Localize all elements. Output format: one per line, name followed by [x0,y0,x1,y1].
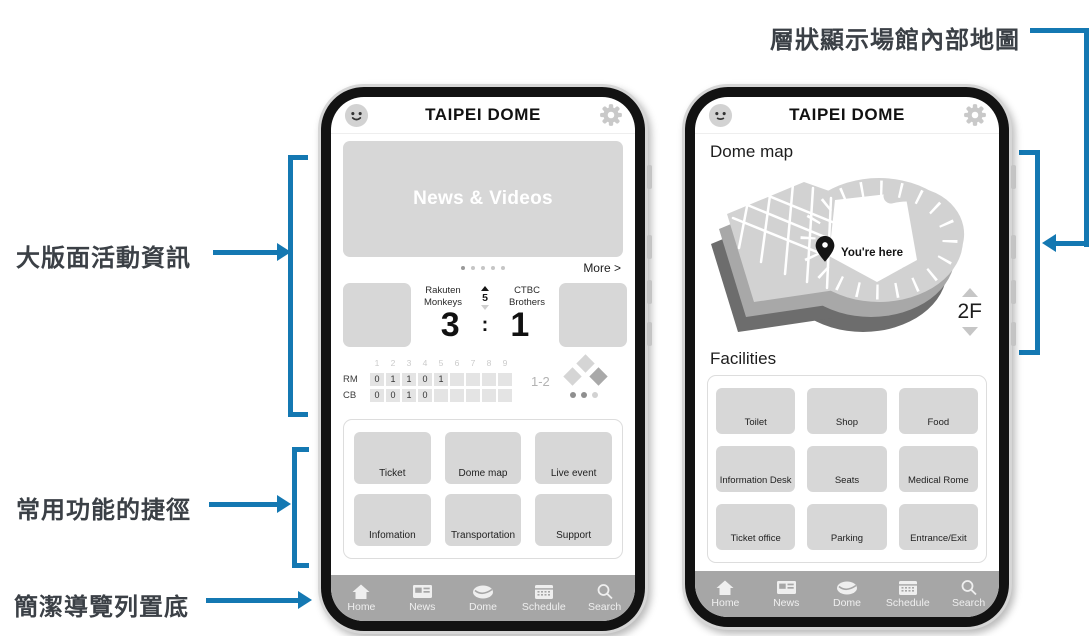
side-button [647,280,652,304]
shortcut-transportation[interactable]: Transportation [445,494,522,546]
floor-down-icon[interactable] [962,327,978,336]
facility-medical-rome[interactable]: Medical Rome [899,446,978,492]
side-button [647,165,652,189]
out-dot [592,392,598,398]
carousel-row: More > [343,259,623,279]
nav-schedule[interactable]: Schedule [513,575,574,621]
search-icon [960,579,978,596]
phone-right-screen: TAIPEI DOME Dome map [695,97,999,617]
home-icon [351,583,371,600]
out-dot [570,392,576,398]
annotation-event-info: 大版面活動資訊 [16,238,191,273]
shortcuts-bracket [292,447,297,568]
shortcut-support[interactable]: Support [535,494,612,546]
nav-news[interactable]: News [392,575,453,621]
nav-search[interactable]: Search [574,575,635,621]
carousel-dot[interactable] [481,266,485,270]
facility-information-desk[interactable]: Information Desk [716,446,795,492]
event-bracket-top-cap [288,155,308,160]
annotation-shortcuts: 常用功能的捷徑 [16,490,191,525]
inning-cell [482,373,496,386]
side-button [647,235,652,259]
away-team-logo [559,283,627,347]
inning-col: 9 [497,358,513,368]
shortcuts-bracket-top-cap [292,447,309,452]
event-bracket [288,155,293,417]
shortcut-dome-map[interactable]: Dome map [445,432,522,484]
inning-col: 6 [449,358,465,368]
inning-cell: 1 [386,373,400,386]
annotation-bottom-nav: 簡潔導覽列置底 [14,587,189,622]
inning-col: 5 [433,358,449,368]
side-button [1011,165,1016,189]
home-icon [715,579,735,596]
event-bracket-bottom-cap [288,412,308,417]
inning-cell [434,389,448,402]
second-base-icon [576,354,594,372]
annotation-map-layers: 層狀顯示場館內部地圖 [770,20,1020,55]
nav-arrowhead [298,591,312,609]
inning-number: 5 [482,292,488,304]
row-team-label: RM [343,374,369,385]
inning-cell: 0 [418,373,432,386]
inning-cell: 0 [370,389,384,402]
map-connector-arrowhead [1042,234,1056,252]
carousel-dot[interactable] [501,266,505,270]
search-icon [596,583,614,600]
inning-cell: 1 [402,389,416,402]
floor-up-icon[interactable] [962,288,978,297]
gear-icon[interactable] [599,103,623,127]
canvas: 層狀顯示場館內部地圖 大版面活動資訊 常用功能的捷徑 簡潔導覽列置底 TAIPE… [0,0,1092,636]
nav-home[interactable]: Home [695,571,756,617]
map-bracket-bottom-cap [1019,350,1040,355]
bottom-nav: Home News Dome Schedule Search [695,571,999,617]
inning-cell [466,373,480,386]
carousel-dots[interactable] [343,266,623,270]
carousel-dot[interactable] [491,266,495,270]
facilities-panel: Toilet Shop Food Information Desk Seats … [707,375,987,563]
inning-cell: 1 [402,373,416,386]
schedule-icon [898,579,918,596]
phone-left: TAIPEI DOME News & Videos [318,84,648,634]
nav-dome[interactable]: Dome [817,571,878,617]
score-separator: : [482,314,489,337]
home-team-logo [343,283,411,347]
inning-cell: 0 [418,389,432,402]
inning-cell [498,373,512,386]
home-score: 3 [441,308,460,342]
inning-col: 4 [417,358,433,368]
bottom-nav: Home News Dome Schedule Search [331,575,635,621]
nav-search[interactable]: Search [938,571,999,617]
inning-bottom-icon [481,305,489,310]
facility-shop[interactable]: Shop [807,388,886,434]
carousel-dot[interactable] [461,266,465,270]
map-bracket [1035,150,1040,355]
news-icon [776,579,797,596]
map-bracket-top-cap [1019,150,1040,155]
inning-cell [466,389,480,402]
away-score: 1 [510,308,529,342]
side-button [647,322,652,346]
inning-col: 3 [401,358,417,368]
facility-food[interactable]: Food [899,388,978,434]
shortcuts-panel: Ticket Dome map Live event Infomation Tr… [343,419,623,559]
nav-news[interactable]: News [756,571,817,617]
facility-seats[interactable]: Seats [807,446,886,492]
more-link[interactable]: More > [583,261,621,275]
row-team-label: CB [343,390,369,401]
inning-cell: 0 [386,389,400,402]
facility-entrance-exit[interactable]: Entrance/Exit [899,504,978,550]
app-title: TAIPEI DOME [331,105,635,125]
first-base-icon [589,367,607,385]
dome-map-title: Dome map [710,142,999,162]
map-connector-line-bottom [1056,241,1089,246]
scoreboard-center: Rakuten Monkeys 5 CTBC Brothers 3 : 1 [411,283,559,347]
inning-cell [482,389,496,402]
third-base-icon [563,367,581,385]
shortcuts-bracket-bottom-cap [292,563,309,568]
inning-cell [498,389,512,402]
inning-cell [450,373,464,386]
app-title: TAIPEI DOME [695,105,999,125]
floor-label: 2F [957,300,982,324]
facility-parking[interactable]: Parking [807,504,886,550]
side-button [1011,322,1016,346]
out-dot [581,392,587,398]
inning-cell [450,389,464,402]
nav-home[interactable]: Home [331,575,392,621]
facility-ticket-office[interactable]: Ticket office [716,504,795,550]
app-header: TAIPEI DOME [695,97,999,133]
inning-indicator: 5 [481,285,489,310]
you-are-here-label: You're here [841,247,903,259]
map-connector-line-side [1084,28,1089,247]
dome-map-illustration: You're here [709,164,981,340]
dome-map: You're here 2F [695,164,999,340]
shortcut-infomation[interactable]: Infomation [354,494,431,546]
app-header: TAIPEI DOME [331,97,635,133]
nav-schedule[interactable]: Schedule [877,571,938,617]
map-connector-line-top [1030,28,1089,33]
bases-diagram [561,356,609,404]
dome-icon [471,583,495,600]
shortcuts-arrowhead [277,495,291,513]
phone-right: TAIPEI DOME Dome map [682,84,1012,630]
inning-col: 7 [465,358,481,368]
side-button [1011,280,1016,304]
inning-top-icon [481,286,489,291]
news-icon [412,583,433,600]
floor-selector: 2F [957,288,982,336]
news-videos-card[interactable]: News & Videos [343,141,623,257]
inning-col: 2 [385,358,401,368]
inning-cell: 1 [434,373,448,386]
shortcut-live-event[interactable]: Live event [535,432,612,484]
shortcut-ticket[interactable]: Ticket [354,432,431,484]
inning-col: 1 [369,358,385,368]
shortcuts-arrow-line [209,502,279,507]
gear-icon[interactable] [963,103,987,127]
scoreboard[interactable]: Rakuten Monkeys 5 CTBC Brothers 3 : 1 [343,283,623,347]
innings-panel: 1 2 3 4 5 6 7 8 9 RM 0 1 1 0 1 [343,356,623,404]
inning-col: 8 [481,358,497,368]
schedule-icon [534,583,554,600]
event-arrow-line [213,250,279,255]
facilities-title: Facilities [710,349,999,369]
inning-cell: 0 [370,373,384,386]
phone-left-screen: TAIPEI DOME News & Videos [331,97,635,621]
news-videos-label: News & Videos [413,188,553,210]
side-button [1011,235,1016,259]
nav-dome[interactable]: Dome [453,575,514,621]
dome-icon [835,579,859,596]
ball-strike-count: 1-2 [531,374,550,389]
facility-toilet[interactable]: Toilet [716,388,795,434]
nav-arrow-line [206,598,300,603]
carousel-dot[interactable] [471,266,475,270]
